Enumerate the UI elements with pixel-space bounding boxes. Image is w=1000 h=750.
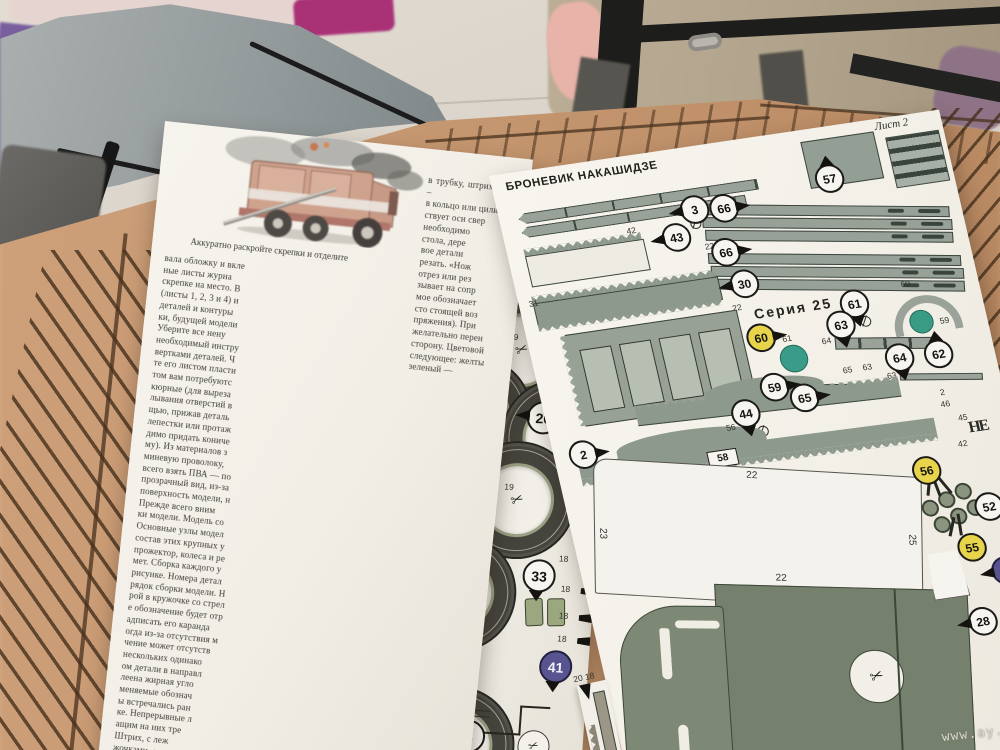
part-label-36: 36 [661,650,673,661]
part-label-31: 31 [528,298,540,309]
badge-28: 28 [965,605,1000,637]
part-label-42: 42 [625,225,637,236]
part-label-2: 2 [939,387,946,397]
part-label-64: 64 [821,335,833,346]
sheet-number: Лист 2 [873,116,909,133]
scissors-icon: ✂ [508,489,526,510]
text-column-left: вала обложку и вкле ные листы журна скре… [113,253,394,750]
panel-label-23: 23 [597,528,608,540]
instruction-page: Аккуратно раскройте скрепки и отделите в… [96,121,533,750]
part-label-60: 60 [900,278,912,289]
badge-55: 55 [955,531,990,563]
panel-label-25: 25 [906,534,917,546]
green-panel-part: 22 ✂ [714,584,976,750]
strip-label-18: 18 [557,633,567,643]
ne-mark: НЕ [967,417,990,437]
badge-60: 60 [743,322,778,354]
cut-hole-part: ✂ [516,729,550,750]
pulley [953,482,974,501]
striped-part [885,130,950,189]
strip-label-18: 18 [560,584,570,594]
part-label-42: 42 [957,438,969,449]
part-label-46: 46 [940,398,952,409]
rod-part [900,373,983,381]
leader-line [518,706,522,736]
part-label-58: 58 [716,452,729,464]
badge-3x: 3 [989,554,1000,586]
tire-inner-label: 19 [504,482,514,492]
strip-part [708,253,962,266]
bone-connector [678,725,691,750]
strip-label-18: 18 [559,553,569,563]
small-green-part [525,598,544,627]
badge-33: 33 [521,559,556,594]
strip-label-18: 18 [559,610,569,620]
badge-41: 41 [538,650,573,685]
wedge-strip-part [577,636,592,646]
strip-part [705,230,954,243]
teal-disc-part [777,343,811,374]
door-window [579,345,625,412]
panel-label-22: 22 [775,573,787,584]
photo-scene: Аккуратно раскройте скрепки и отделите в… [0,0,1000,750]
badge-43: 43 [659,221,694,253]
armored-car-illustration [209,127,434,254]
curved-green-part: 36 [616,605,734,750]
panel-label-22: 22 [746,470,757,481]
strip-part [702,217,953,230]
bone-connector [675,620,720,628]
scissors-icon: ✂ [526,737,540,750]
scissors-icon: ✂ [866,665,887,687]
part-label-59: 59 [939,315,951,326]
leader-line [520,706,550,709]
